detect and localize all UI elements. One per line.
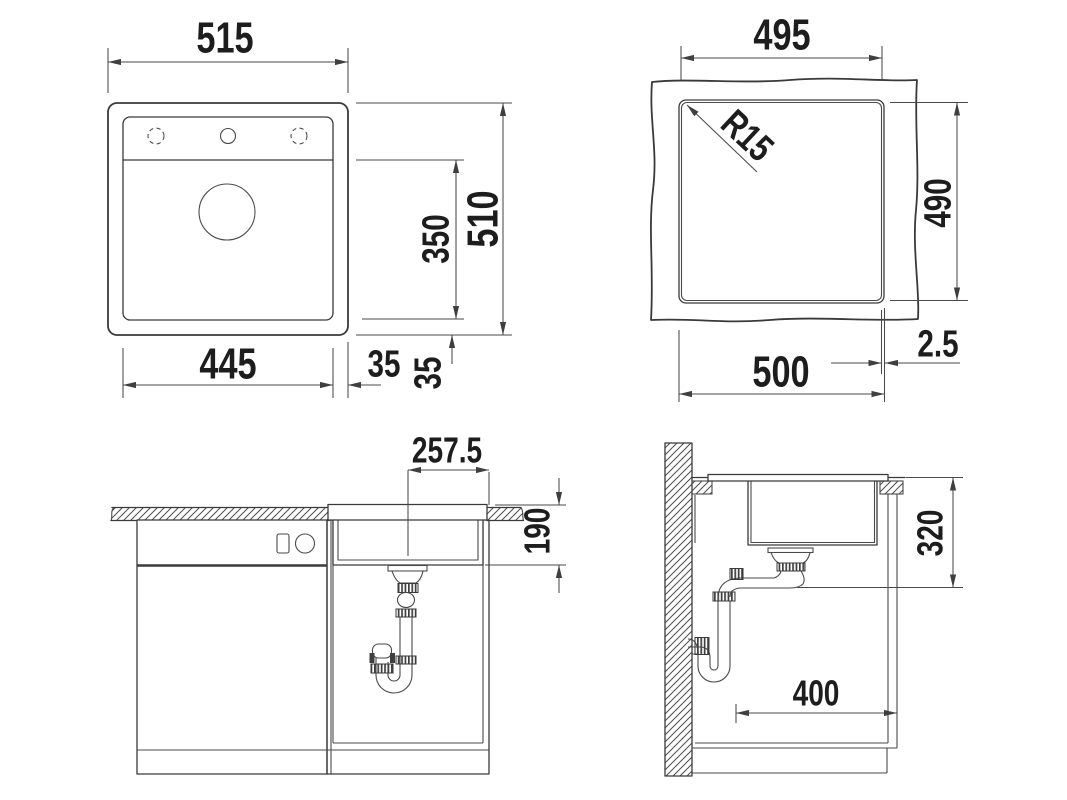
cutout-top-width-dim: 495 xyxy=(753,10,810,59)
required-depth-dim: 320 xyxy=(910,510,950,557)
edge-gap-dim: 2.5 xyxy=(917,323,958,365)
tap-hole-center-icon xyxy=(221,129,236,144)
cutout-view: R15 495 490 500 2.5 xyxy=(651,10,968,402)
drain-trap-side xyxy=(688,548,813,682)
faucet-holes xyxy=(148,128,307,144)
cutout-bottom-width-dim: 500 xyxy=(752,347,809,396)
plan-view: 515 510 350 445 35 35 xyxy=(108,13,512,398)
sink-edge-outline xyxy=(682,103,882,301)
side-section-view: 320 400 xyxy=(665,443,963,776)
technical-drawing-page: 515 510 350 445 35 35 xyxy=(0,0,1067,800)
tap-hole-right-icon xyxy=(291,128,307,144)
center-to-edge-dim: 257.5 xyxy=(412,430,482,470)
bowl-depth-front-dim: 190 xyxy=(517,508,557,555)
rim-back-dim: 35 xyxy=(407,357,449,390)
tap-hole-left-icon xyxy=(148,128,164,144)
drain-hole-icon xyxy=(199,184,255,240)
overall-width-dim: 515 xyxy=(196,13,253,62)
sink-outline xyxy=(108,103,348,335)
rim-side-dim: 35 xyxy=(368,343,401,385)
countertop-broken-outline xyxy=(651,79,918,322)
wall-section xyxy=(665,443,692,776)
cutout-outline xyxy=(679,100,884,303)
front-section-view: 257.5 190 xyxy=(111,430,566,774)
drain-trap-front xyxy=(370,566,428,694)
base-width-dim: 400 xyxy=(793,673,840,713)
sink-technical-drawing: 515 510 350 445 35 35 xyxy=(0,0,1067,800)
cutout-dimensions: R15 495 490 500 2.5 xyxy=(679,10,968,402)
sink-bowl-side xyxy=(708,475,888,546)
overall-depth-dim: 510 xyxy=(458,190,507,247)
bowl-width-dim: 445 xyxy=(199,339,256,388)
bowl-depth-dim: 350 xyxy=(415,214,457,263)
corner-radius-dim: R15 xyxy=(713,102,782,170)
plan-dimensions: 515 510 350 445 35 35 xyxy=(108,13,512,398)
cutout-height-dim: 490 xyxy=(917,178,959,227)
